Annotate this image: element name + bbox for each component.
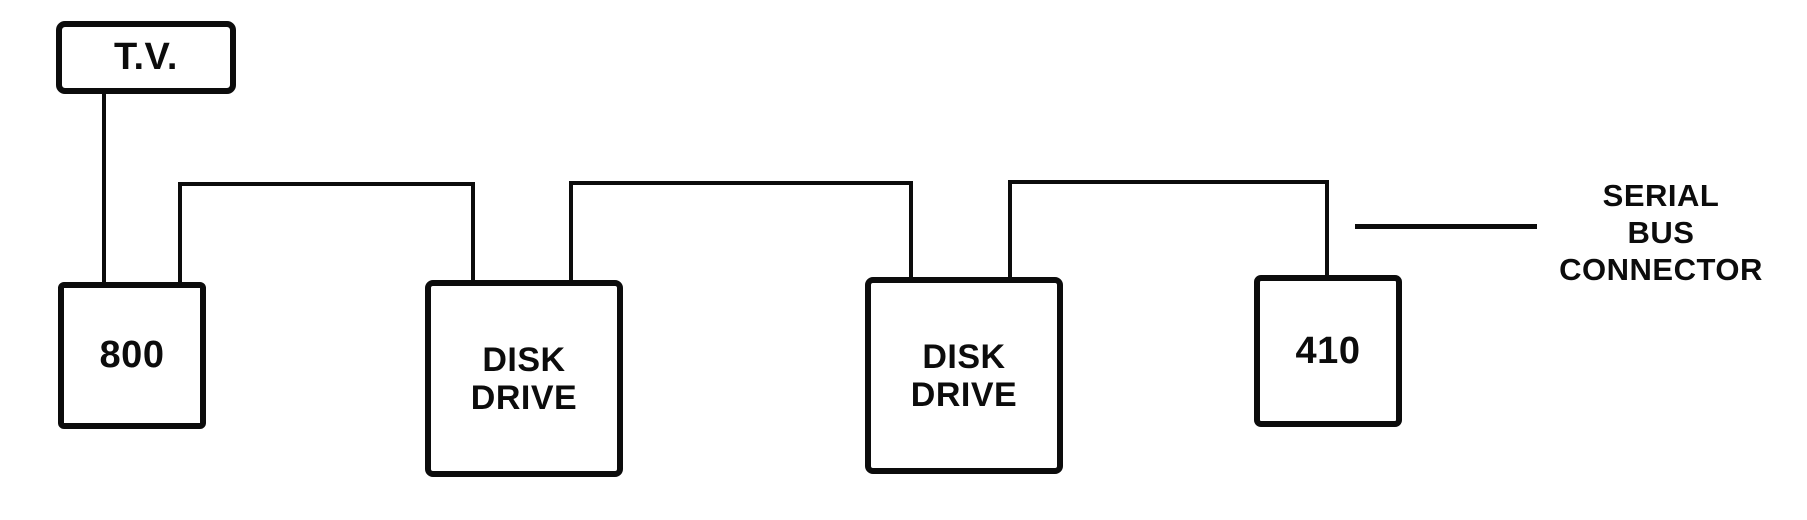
bus-segment-diskdrive2-to-410 <box>1008 180 1329 184</box>
bus-drop-diskdrive1-left <box>471 182 475 284</box>
bus-riser-diskdrive2-right <box>1008 180 1012 281</box>
node-disk-drive-1-label: DISK DRIVE <box>471 341 577 417</box>
bus-drop-diskdrive2-left <box>909 181 913 281</box>
bus-segment-800-to-diskdrive1 <box>178 182 475 186</box>
callout-pointer-line <box>1355 224 1537 229</box>
node-recorder-410-label: 410 <box>1296 330 1361 373</box>
serial-bus-diagram: T.V. 800 DISK DRIVE DISK DRIVE 410 SERIA… <box>0 0 1807 520</box>
node-computer-800: 800 <box>58 282 206 429</box>
node-disk-drive-2: DISK DRIVE <box>865 277 1063 474</box>
bus-riser-diskdrive1-right <box>569 181 573 284</box>
serial-bus-connector-label: SERIAL BUS CONNECTOR <box>1527 177 1795 288</box>
connector-line-tv-to-800 <box>102 90 106 286</box>
node-recorder-410: 410 <box>1254 275 1402 427</box>
node-tv-label: T.V. <box>114 36 178 79</box>
node-disk-drive-1: DISK DRIVE <box>425 280 623 477</box>
node-computer-800-label: 800 <box>100 334 165 377</box>
node-disk-drive-2-label: DISK DRIVE <box>911 338 1017 414</box>
node-tv: T.V. <box>56 21 236 94</box>
bus-drop-410 <box>1325 180 1329 279</box>
bus-segment-diskdrive1-to-diskdrive2 <box>569 181 913 185</box>
bus-riser-800 <box>178 182 182 286</box>
